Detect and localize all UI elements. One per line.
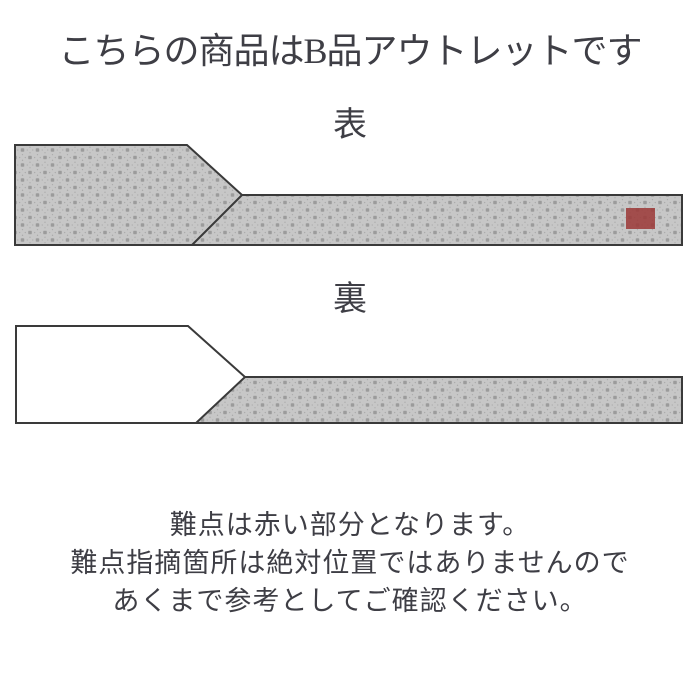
- note-line-2: 難点指摘箇所は絶対位置ではありませんので: [0, 544, 700, 582]
- note-line-3: あくまで参考としてご確認ください。: [0, 582, 700, 620]
- product-notice-image: こちらの商品はB品アウトレットです 表 裏: [0, 0, 700, 700]
- back-diagram: [16, 326, 682, 423]
- front-diagram: [15, 145, 682, 245]
- back-strip-shape: [196, 377, 682, 423]
- note-line-1: 難点は赤い部分となります。: [0, 506, 700, 544]
- defect-marker: [626, 208, 655, 229]
- front-tie-shape: [15, 145, 682, 245]
- defect-note: 難点は赤い部分となります。 難点指摘箇所は絶対位置ではありませんので あくまで参…: [0, 506, 700, 620]
